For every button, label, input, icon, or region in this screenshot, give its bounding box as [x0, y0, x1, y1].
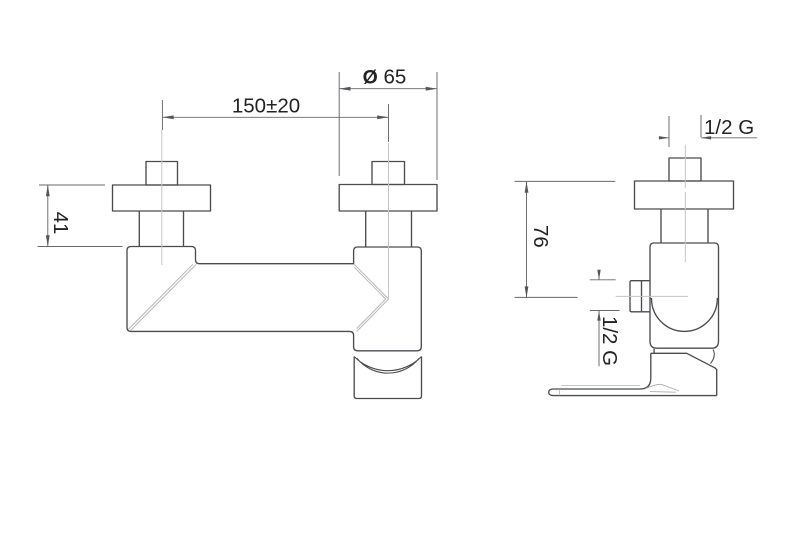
svg-text:Ø 65: Ø 65	[363, 66, 407, 89]
svg-text:1/2 G: 1/2 G	[598, 316, 621, 366]
svg-text:41: 41	[49, 212, 72, 235]
svg-text:150±20: 150±20	[232, 95, 300, 118]
svg-text:1/2 G: 1/2 G	[704, 116, 754, 139]
svg-text:76: 76	[529, 225, 552, 248]
